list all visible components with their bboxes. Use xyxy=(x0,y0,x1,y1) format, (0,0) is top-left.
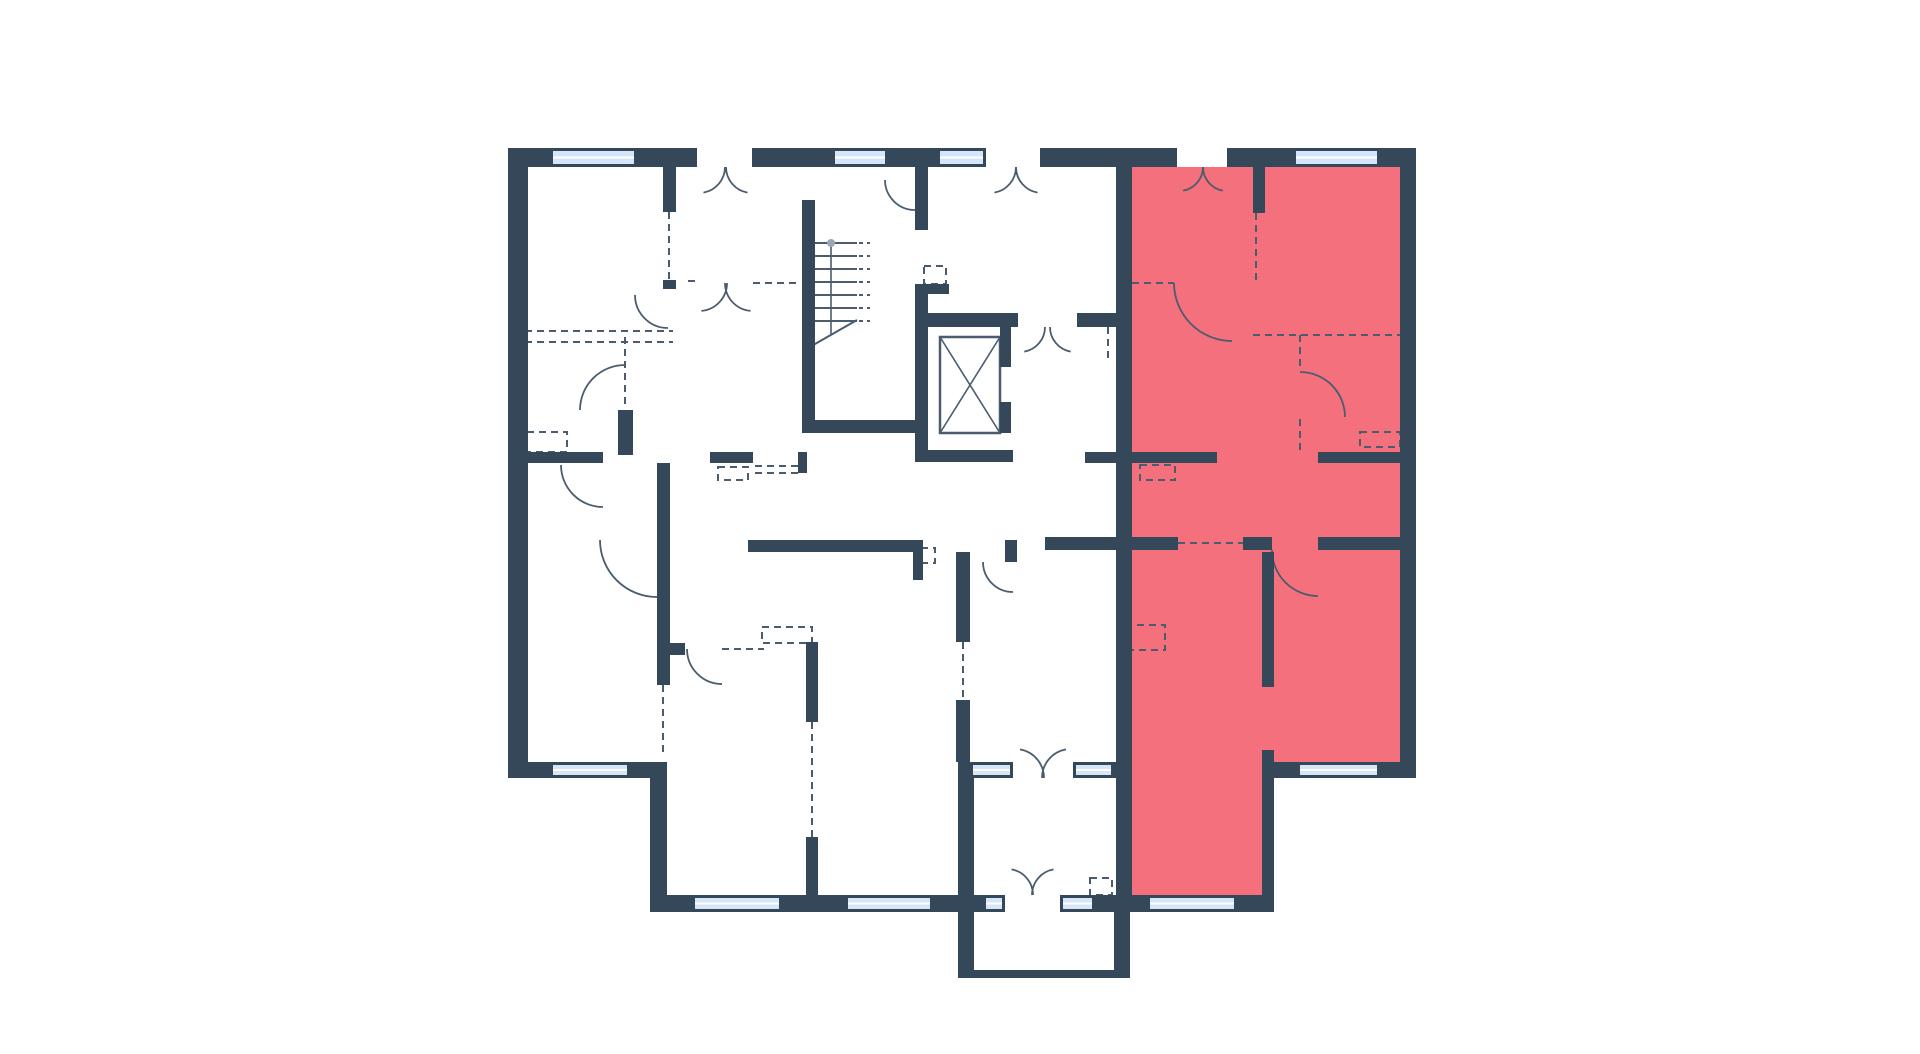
window xyxy=(550,148,637,167)
window xyxy=(983,895,1005,912)
window xyxy=(692,895,782,912)
door-arc xyxy=(701,283,727,311)
wall-segment xyxy=(1000,402,1011,433)
wall-segment xyxy=(1095,895,1116,912)
wall-segment xyxy=(958,778,974,972)
wall-segment xyxy=(1227,148,1293,167)
door-arc xyxy=(983,562,1013,592)
wall-segment xyxy=(650,895,692,912)
dashed-furniture xyxy=(921,548,935,563)
door-arc xyxy=(1050,327,1071,352)
dashed-furniture xyxy=(718,467,748,480)
wall-segment xyxy=(802,420,917,433)
wall-segment xyxy=(782,895,845,912)
wall-segment xyxy=(927,284,949,294)
door-arc xyxy=(995,167,1017,193)
wall-segment xyxy=(1253,167,1265,213)
window xyxy=(1293,148,1380,167)
wall-segment xyxy=(958,762,970,778)
door-arc xyxy=(725,283,751,311)
floor-plan-svg xyxy=(0,0,1920,1054)
wall-segment xyxy=(1132,452,1217,463)
wall-segment xyxy=(1085,452,1132,463)
wall-segment xyxy=(663,167,676,212)
wall-segment xyxy=(1318,537,1402,550)
wall-segment xyxy=(927,313,1018,327)
wall-segment xyxy=(1262,552,1274,687)
door-arc xyxy=(687,649,722,684)
wall-segment xyxy=(888,148,937,167)
dashed-furniture xyxy=(924,266,946,284)
wall-segment xyxy=(618,410,633,455)
wall-segment xyxy=(650,778,667,912)
wall-segment xyxy=(1114,912,1130,976)
window xyxy=(550,762,630,778)
wall-segment xyxy=(637,148,697,167)
staircase-icon xyxy=(808,239,870,348)
wall-segment xyxy=(958,970,1130,978)
elevator-icon xyxy=(940,337,1000,433)
wall-segment xyxy=(1045,537,1178,550)
wall-segment xyxy=(956,700,970,762)
dashed-furniture xyxy=(1090,878,1112,895)
dashed-furniture xyxy=(527,432,567,452)
dashed-furniture xyxy=(762,627,812,643)
wall-segment xyxy=(806,642,818,722)
wall-segment xyxy=(1400,148,1416,778)
door-arc xyxy=(1020,749,1044,778)
wall-segment xyxy=(1005,540,1017,562)
wall-segment xyxy=(630,762,667,778)
door-arc xyxy=(1024,327,1045,352)
wall-segment xyxy=(710,452,753,463)
window xyxy=(1073,762,1114,778)
door-arc xyxy=(1032,869,1054,895)
door-arc xyxy=(704,167,726,193)
door-arc xyxy=(1016,167,1038,193)
door-arc xyxy=(635,295,668,328)
door-arc xyxy=(885,180,915,210)
door-arc xyxy=(580,365,625,410)
wall-segment xyxy=(1318,452,1402,463)
wall-segment xyxy=(956,552,970,642)
wall-segment xyxy=(1272,762,1297,778)
wall-segment xyxy=(1132,895,1147,912)
stair-direction-line xyxy=(808,320,857,348)
wall-segment xyxy=(798,452,807,473)
wall-segment xyxy=(802,200,815,433)
wall-segment xyxy=(663,280,676,289)
door-arc xyxy=(1012,869,1034,895)
wall-segment xyxy=(913,540,923,580)
door-arc xyxy=(1042,749,1066,778)
window xyxy=(970,762,1013,778)
window xyxy=(937,148,986,167)
stair-newel xyxy=(827,239,835,247)
floorplan-canvas xyxy=(0,0,1920,1054)
wall-segment xyxy=(752,148,832,167)
wall-segment xyxy=(1243,537,1272,550)
wall-segment xyxy=(1077,313,1116,327)
wall-segment xyxy=(1380,762,1416,778)
wall-segment xyxy=(915,284,928,462)
wall-segment xyxy=(1040,148,1177,167)
door-arc xyxy=(726,167,748,193)
wall-segment xyxy=(657,643,685,655)
window xyxy=(1060,895,1095,912)
door-arc xyxy=(561,465,603,507)
wall-segment xyxy=(915,450,1013,462)
window xyxy=(832,148,888,167)
wall-segment xyxy=(1000,327,1011,367)
wall-segment xyxy=(748,540,913,552)
wall-segment xyxy=(1262,750,1274,912)
window xyxy=(845,895,933,912)
wall-segment xyxy=(508,762,550,778)
window xyxy=(1297,762,1380,778)
door-arc xyxy=(600,540,657,597)
wall-segment xyxy=(806,837,818,895)
core-symbols-layer xyxy=(808,239,1000,433)
window xyxy=(1147,895,1237,912)
wall-segment xyxy=(508,452,603,463)
wall-segment xyxy=(915,167,928,230)
